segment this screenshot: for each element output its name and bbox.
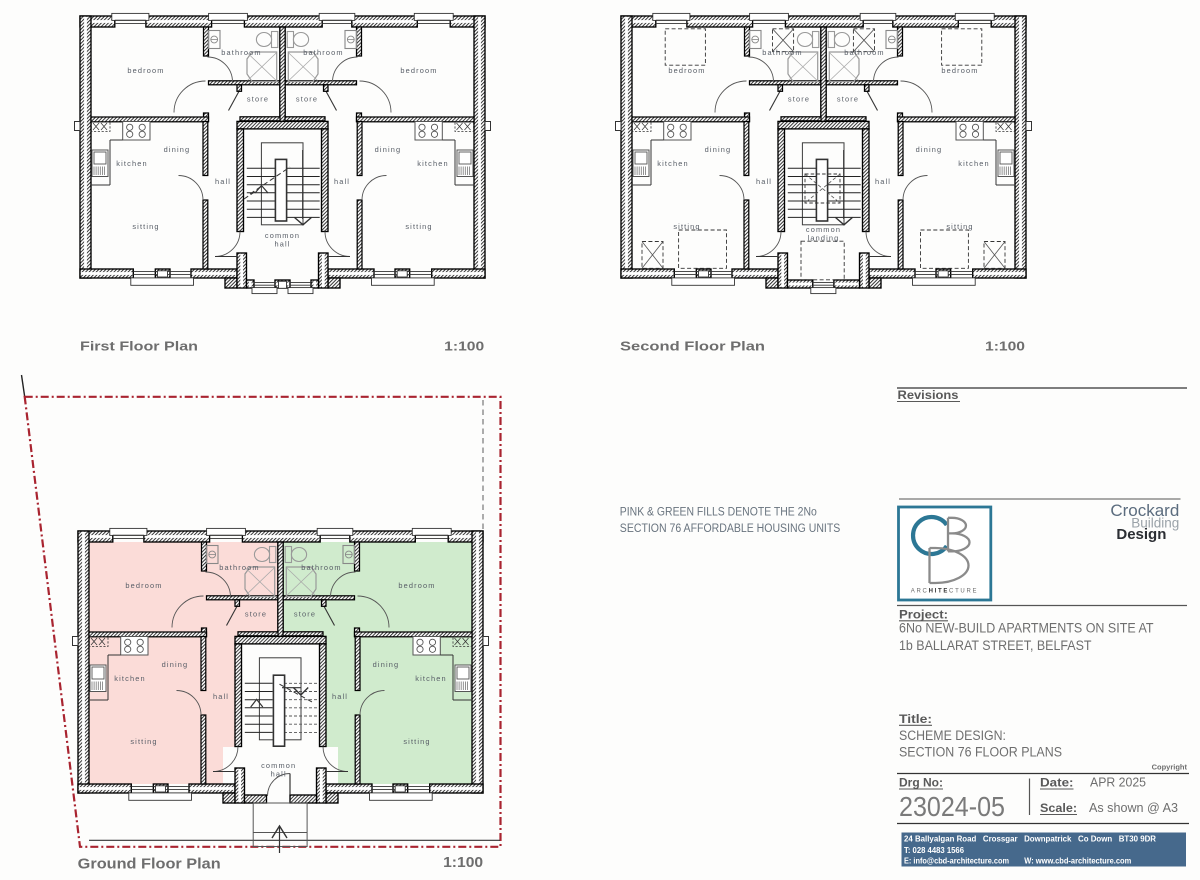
svg-text:kitchen: kitchen — [415, 674, 446, 683]
svg-text:First Floor Plan: First Floor Plan — [80, 339, 198, 354]
svg-text:Design: Design — [1116, 526, 1166, 543]
svg-text:PINK & GREEN FILLS DENOTE THE: PINK & GREEN FILLS DENOTE THE 2No — [620, 507, 817, 519]
svg-text:store: store — [294, 610, 316, 619]
svg-text:SECTION 76 FLOOR PLANS: SECTION 76 FLOOR PLANS — [899, 745, 1062, 760]
svg-text:dining: dining — [373, 660, 400, 669]
svg-text:hall: hall — [271, 770, 287, 779]
svg-text:Title:: Title: — [899, 712, 932, 726]
svg-text:sitting: sitting — [403, 737, 430, 746]
svg-text:kitchen: kitchen — [114, 674, 145, 683]
svg-text:hall: hall — [213, 692, 229, 701]
svg-text:bathroom: bathroom — [219, 563, 259, 572]
svg-text:1:100: 1:100 — [985, 339, 1025, 354]
svg-text:sitting: sitting — [132, 222, 159, 231]
svg-text:Date:: Date: — [1040, 776, 1074, 790]
svg-text:bathroom: bathroom — [221, 48, 261, 57]
svg-text:hall: hall — [756, 177, 772, 186]
svg-text:bathroom: bathroom — [844, 48, 884, 57]
svg-text:Copyright: Copyright — [1152, 763, 1188, 772]
svg-text:hall: hall — [334, 177, 350, 186]
svg-text:kitchen: kitchen — [116, 159, 147, 168]
svg-text:dining: dining — [164, 145, 191, 154]
svg-text:bedroom: bedroom — [668, 66, 705, 75]
svg-text:hall: hall — [875, 177, 891, 186]
svg-text:Revisions: Revisions — [898, 388, 959, 402]
svg-text:hall: hall — [332, 692, 348, 701]
svg-text:bathroom: bathroom — [762, 48, 802, 57]
svg-text:sitting: sitting — [673, 222, 700, 231]
svg-text:As shown @ A3: As shown @ A3 — [1089, 800, 1178, 815]
svg-text:Project:: Project: — [899, 608, 948, 622]
svg-text:24 Ballyalgan Road Crossgar: 24 Ballyalgan Road Crossgar Downpatrick … — [904, 835, 1156, 844]
svg-text:dining: dining — [705, 145, 732, 154]
svg-text:common: common — [806, 225, 841, 234]
svg-text:Second Floor Plan: Second Floor Plan — [620, 339, 765, 354]
svg-text:bathroom: bathroom — [301, 563, 341, 572]
svg-text:bedroom: bedroom — [127, 66, 164, 75]
svg-text:6No NEW-BUILD APARTMENTS ON SI: 6No NEW-BUILD APARTMENTS ON SITE AT — [899, 621, 1154, 636]
svg-text:bathroom: bathroom — [303, 48, 343, 57]
svg-text:kitchen: kitchen — [657, 159, 688, 168]
svg-text:23024-05: 23024-05 — [899, 791, 1005, 822]
svg-text:sitting: sitting — [946, 222, 973, 231]
svg-text:1:100: 1:100 — [444, 339, 484, 354]
svg-text:store: store — [837, 95, 859, 104]
svg-text:SCHEME DESIGN:: SCHEME DESIGN: — [899, 728, 1006, 743]
svg-text:dining: dining — [375, 145, 402, 154]
svg-text:Scale:: Scale: — [1040, 801, 1077, 815]
svg-text:dining: dining — [916, 145, 943, 154]
svg-text:sitting: sitting — [405, 222, 432, 231]
svg-text:bedroom: bedroom — [941, 66, 978, 75]
svg-text:Drg No:: Drg No: — [899, 776, 943, 790]
svg-text:store: store — [245, 610, 267, 619]
svg-text:store: store — [247, 95, 269, 104]
svg-text:dining: dining — [162, 660, 189, 669]
svg-text:Ground Floor Plan: Ground Floor Plan — [78, 857, 221, 873]
svg-text:ARCHITECTURE: ARCHITECTURE — [911, 589, 978, 595]
svg-text:bedroom: bedroom — [398, 581, 435, 590]
svg-text:APR 2025: APR 2025 — [1090, 775, 1146, 790]
svg-text:1:100: 1:100 — [443, 855, 483, 871]
svg-text:bedroom: bedroom — [125, 581, 162, 590]
svg-text:kitchen: kitchen — [958, 159, 989, 168]
svg-text:landing: landing — [808, 234, 840, 243]
svg-text:bedroom: bedroom — [400, 66, 437, 75]
svg-text:E: info@cbd-architecture.com: E: info@cbd-architecture.com — [904, 856, 1009, 865]
svg-text:sitting: sitting — [130, 737, 157, 746]
svg-text:kitchen: kitchen — [417, 159, 448, 168]
svg-text:store: store — [296, 95, 318, 104]
svg-text:1b BALLARAT STREET, BELFAST: 1b BALLARAT STREET, BELFAST — [899, 638, 1092, 653]
svg-text:store: store — [788, 95, 810, 104]
svg-text:hall: hall — [274, 239, 290, 248]
svg-text:hall: hall — [215, 177, 231, 186]
svg-text:W: www.cbd-architecture.com: W: www.cbd-architecture.com — [1024, 856, 1131, 865]
svg-text:T: 028 4483 1566: T: 028 4483 1566 — [904, 846, 964, 855]
svg-text:SECTION 76 AFFORDABLE HOUSING: SECTION 76 AFFORDABLE HOUSING UNITS — [620, 523, 841, 535]
